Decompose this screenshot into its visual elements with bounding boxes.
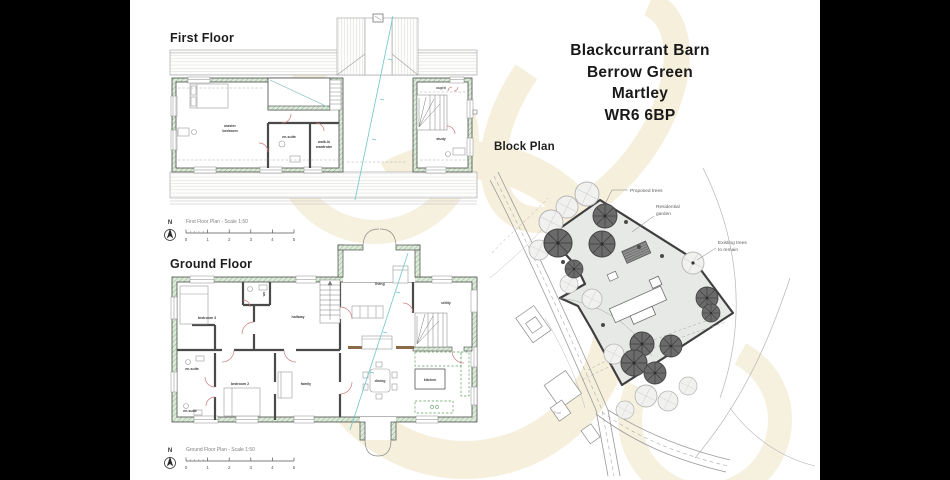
- annotation-proposed-trees: Proposed trees: [630, 188, 663, 194]
- north-compass-icon: [165, 457, 176, 469]
- annotation-residential-garden: Residential: [656, 204, 680, 210]
- room-label-en-suite: en-suite: [282, 135, 296, 139]
- svg-text:3: 3: [250, 465, 253, 470]
- title-line-3: Martley: [510, 83, 770, 105]
- room-label-en-suite-top: en-suite: [185, 367, 199, 371]
- paper-sheet: First Floor Ground Floor Block Plan Blac…: [130, 0, 820, 480]
- drawing-sheet-stage: First Floor Ground Floor Block Plan Blac…: [0, 0, 950, 480]
- room-label-bedroom-3: bedroom 3: [198, 316, 216, 320]
- winder-staircase: [415, 313, 447, 347]
- staircase: [330, 80, 341, 110]
- room-label-dining: dining: [375, 379, 386, 383]
- room-label-master-bedroom: master: [224, 124, 236, 128]
- svg-text:4: 4: [271, 465, 274, 470]
- svg-text:bedroom: bedroom: [222, 129, 237, 133]
- neighbour-buildings: [516, 306, 600, 444]
- winder-staircase: [417, 95, 447, 130]
- room-label-kitchen: kitchen: [424, 378, 437, 382]
- title-line-4: WR6 6BP: [510, 105, 770, 127]
- project-title-block: Blackcurrant Barn Berrow Green Martley W…: [510, 40, 770, 126]
- room-label-walk-in-wardrobe: walk-in: [317, 140, 330, 144]
- svg-text:wardrobe: wardrobe: [315, 145, 332, 149]
- title-line-1: Blackcurrant Barn: [510, 40, 770, 62]
- room-label-living: living: [375, 282, 384, 286]
- svg-text:to remain: to remain: [718, 247, 738, 253]
- block-plan-drawing: Proposed trees Residential garden Existi…: [490, 158, 815, 478]
- ground-floor-scale-bar: N Ground Floor Plan - Scale 1:50 0 1 2 3: [162, 442, 302, 472]
- room-label-wc: wc: [262, 292, 266, 298]
- main-staircase: [320, 280, 340, 323]
- svg-text:2: 2: [228, 465, 231, 470]
- room-label-utility: utility: [441, 301, 451, 305]
- svg-text:garden: garden: [656, 211, 671, 217]
- svg-text:0: 0: [185, 465, 188, 470]
- ground-floor-heading: Ground Floor: [170, 257, 252, 271]
- threshold-bar: [396, 346, 414, 349]
- first-floor-heading: First Floor: [170, 31, 234, 45]
- room-label-bedroom-2: bedroom 2: [231, 382, 249, 386]
- svg-text:5: 5: [293, 465, 296, 470]
- room-label-cupboard: cup'd: [436, 86, 445, 90]
- svg-text:1: 1: [206, 465, 209, 470]
- threshold-bar: [348, 346, 364, 349]
- north-label: N: [168, 448, 172, 454]
- block-plan-heading: Block Plan: [494, 141, 555, 153]
- annotation-existing-trees: Existing trees: [718, 240, 747, 246]
- room-label-en-suite-bottom: en-suite: [183, 409, 197, 413]
- room-label-hallway: hallway: [292, 315, 305, 319]
- room-label-study: study: [436, 137, 446, 141]
- title-line-2: Berrow Green: [510, 62, 770, 84]
- map-label: Pool: [554, 411, 561, 415]
- room-label-family: family: [301, 382, 311, 386]
- scale-caption: Ground Floor Plan - Scale 1:50: [186, 447, 255, 453]
